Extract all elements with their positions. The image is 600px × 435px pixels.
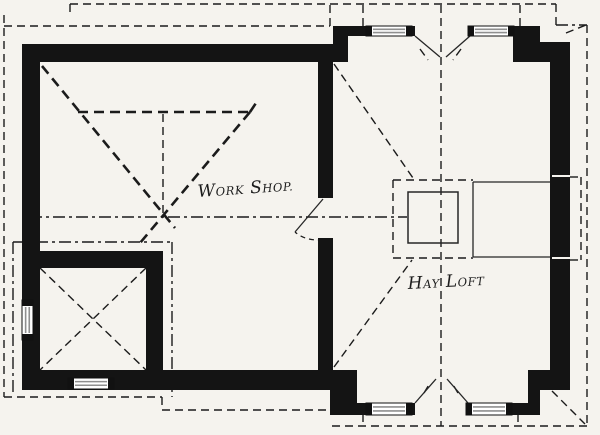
door-swing-line <box>415 379 436 403</box>
door-swing-line <box>447 379 468 403</box>
window <box>366 26 412 36</box>
wall-segment <box>318 62 333 198</box>
window <box>366 403 412 415</box>
roof-dashed-line <box>566 25 586 33</box>
wall-segment <box>550 42 570 390</box>
roof-dashed-line <box>420 49 428 60</box>
window-cap <box>468 26 474 36</box>
roof-dashed-line <box>40 268 146 370</box>
roof-hip-dashed-line <box>140 112 250 243</box>
door-swing-line <box>415 36 440 57</box>
floor-plan-page: WORK SHOP.HAY LOFT <box>0 0 600 435</box>
window-cap <box>506 403 512 415</box>
window-cap <box>108 378 114 389</box>
roof-hip-dashed-line <box>250 103 256 112</box>
wall-segment <box>22 44 348 62</box>
window <box>468 26 514 36</box>
wall-segment <box>318 238 333 371</box>
window-cap <box>22 300 33 306</box>
wall-segment <box>22 251 163 268</box>
hay-chute-opening <box>408 192 458 243</box>
door-swing-line <box>295 199 323 232</box>
window-cap <box>508 26 514 36</box>
window-cap <box>406 26 412 36</box>
wall-segment <box>513 26 540 62</box>
roof-dashed-line <box>40 268 146 370</box>
window-cap <box>68 378 74 389</box>
wall-segment <box>146 251 163 388</box>
roof-dashed-line <box>552 391 585 424</box>
wall-segment <box>330 370 357 415</box>
window-cap <box>466 403 472 415</box>
floor-plan-drawing: WORK SHOP.HAY LOFT <box>0 0 600 435</box>
window <box>466 403 512 415</box>
window-cap <box>406 403 412 415</box>
window-cap <box>366 26 372 36</box>
room-label-hayloft: HAY LOFT <box>406 270 486 294</box>
room-label-workshop: WORK SHOP. <box>197 175 294 202</box>
roof-dashed-line <box>334 64 413 178</box>
window-cap <box>366 403 372 415</box>
window <box>68 378 114 389</box>
roof-dashed-line <box>334 260 412 367</box>
window-cap <box>22 334 33 340</box>
roof-hip-dashed-line <box>42 66 175 228</box>
